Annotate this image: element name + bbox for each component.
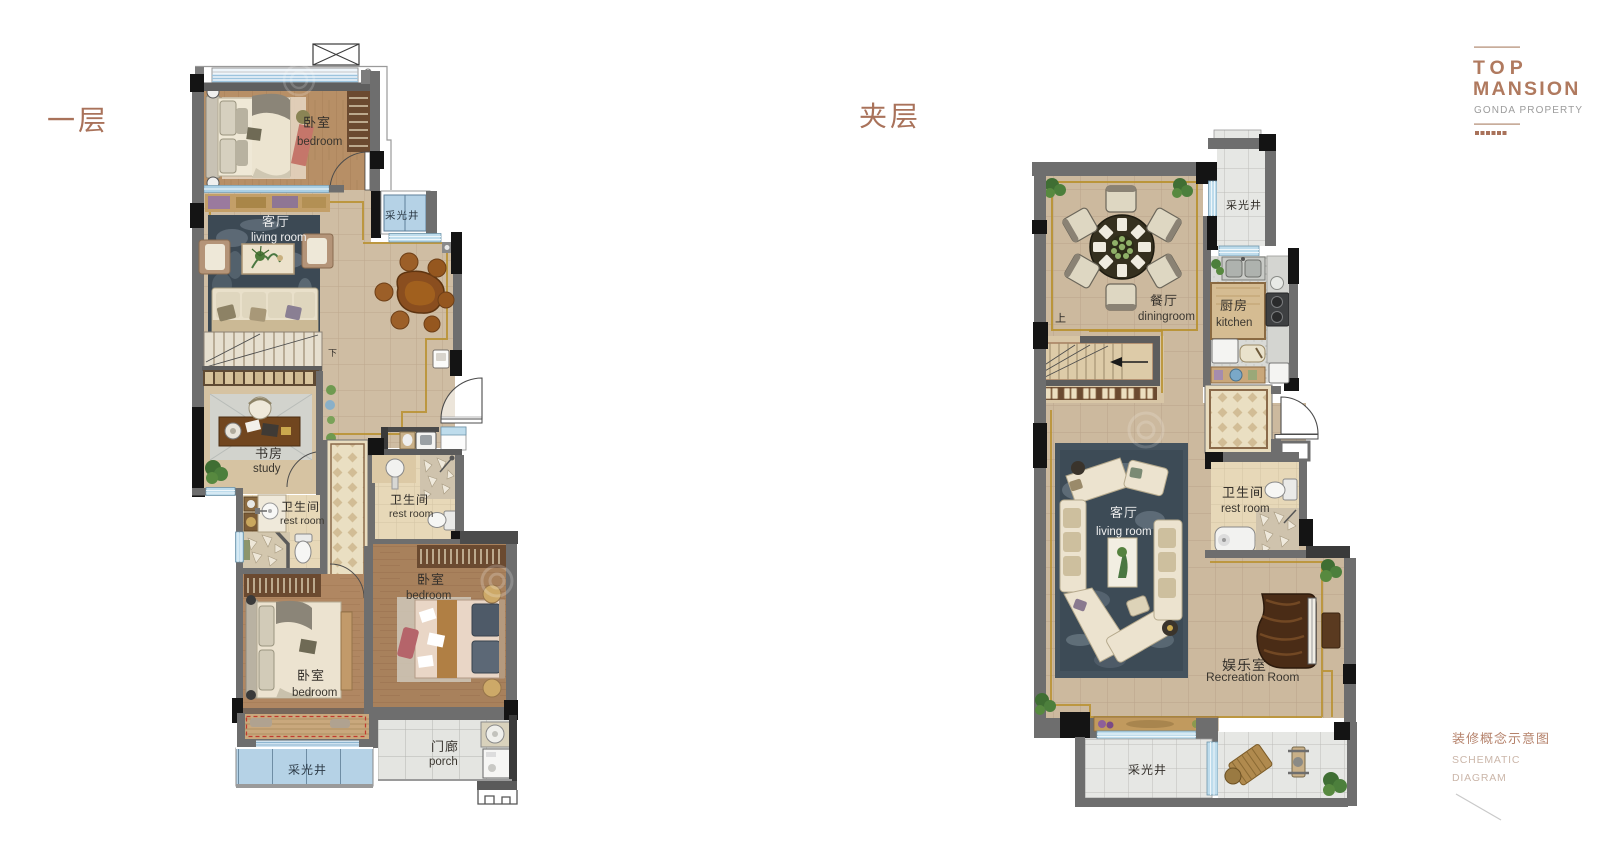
svg-text:DIAGRAM: DIAGRAM	[1452, 772, 1507, 784]
svg-text:rest room: rest room	[389, 508, 434, 520]
svg-text:Recreation Room: Recreation Room	[1206, 670, 1299, 684]
svg-text:bedroom: bedroom	[406, 590, 451, 602]
svg-text:bedroom: bedroom	[292, 687, 337, 699]
svg-text:diningroom: diningroom	[1138, 311, 1195, 323]
svg-text:TOP: TOP	[1473, 57, 1528, 79]
svg-text:MANSION: MANSION	[1473, 78, 1580, 100]
svg-text:GONDA PROPERTY: GONDA PROPERTY	[1474, 105, 1583, 116]
svg-text:porch: porch	[429, 756, 458, 768]
svg-text:bedroom: bedroom	[297, 136, 342, 148]
svg-text:rest room: rest room	[280, 515, 325, 527]
svg-text:living room: living room	[251, 232, 307, 244]
svg-text:living room: living room	[1096, 526, 1152, 538]
svg-text:SCHEMATIC: SCHEMATIC	[1452, 754, 1520, 766]
svg-text:study: study	[253, 463, 281, 475]
svg-text:rest room: rest room	[1221, 503, 1270, 515]
svg-text:kitchen: kitchen	[1216, 317, 1252, 329]
